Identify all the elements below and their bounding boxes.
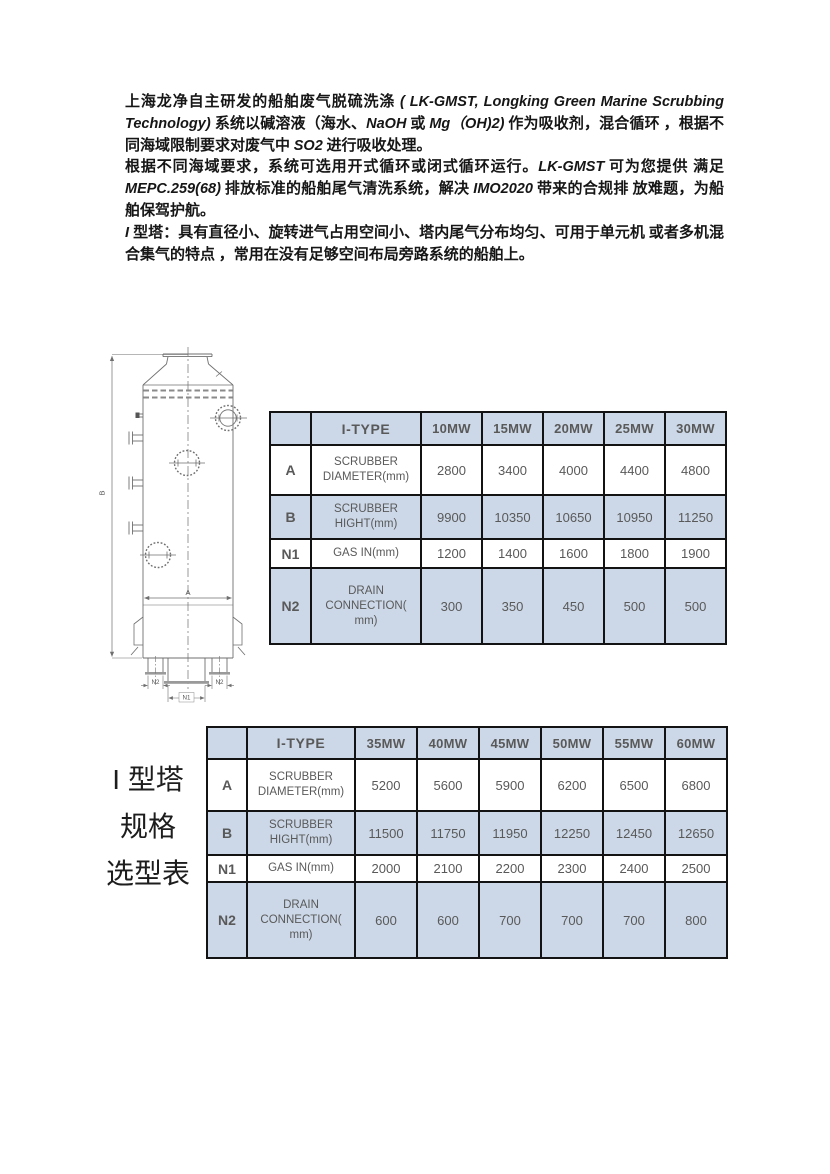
value-cell: 2800 (421, 445, 482, 495)
value-cell: 10950 (604, 495, 665, 539)
tower-diagram-svg: A B N2 N2 N1 (95, 333, 255, 713)
spec-table-35-60mw: I-TYPE35MW40MW45MW50MW55MW60MWASCRUBBER … (206, 726, 728, 959)
value-cell: 2400 (603, 855, 665, 882)
value-cell: 500 (604, 568, 665, 644)
text-run: Mg（OH)2) (429, 116, 504, 132)
value-cell: 2300 (541, 855, 603, 882)
value-cell: 4800 (665, 445, 726, 495)
column-header-cell: 55MW (603, 727, 665, 759)
row-label-cell: SCRUBBER HIGHT(mm) (311, 495, 421, 539)
value-cell: 6800 (665, 759, 727, 811)
value-cell: 450 (543, 568, 604, 644)
text-run: MEPC.259(68) (125, 181, 221, 197)
value-cell: 1900 (665, 539, 726, 568)
row-label-cell: SCRUBBER DIAMETER(mm) (311, 445, 421, 495)
text-run: IMO2020 (473, 181, 533, 197)
nozzle-label-n1: N1 (183, 695, 191, 702)
column-header-cell: 60MW (665, 727, 727, 759)
table-row-N1: N1GAS IN(mm)200021002200230024002500 (207, 855, 727, 882)
table-row-N1: N1GAS IN(mm)12001400160018001900 (270, 539, 726, 568)
column-header-cell: 45MW (479, 727, 541, 759)
side-caption-line: I 型塔 (92, 756, 204, 803)
value-cell: 10650 (543, 495, 604, 539)
row-label-cell: DRAIN CONNECTION( mm) (311, 568, 421, 644)
value-cell: 700 (603, 882, 665, 958)
value-cell: 700 (479, 882, 541, 958)
manhole-middle (169, 451, 205, 476)
column-header-cell: 15MW (482, 412, 543, 445)
value-cell: 11750 (417, 811, 479, 855)
table-row-B: BSCRUBBER HIGHT(mm)990010350106501095011… (270, 495, 726, 539)
text-run: 上海龙净自主研发的船舶废气脱硫洗涤 (125, 94, 400, 110)
text-run: I (125, 225, 133, 241)
row-label-cell: SCRUBBER DIAMETER(mm) (247, 759, 355, 811)
text-run: LK-GMST (538, 159, 604, 175)
side-caption: I 型塔规格选型表 (92, 756, 204, 897)
value-cell: 1200 (421, 539, 482, 568)
manhole-lower-left (140, 543, 176, 568)
value-cell: 3400 (482, 445, 543, 495)
text-run: 排放标准的船舶尾气清洗系统，解决 (221, 181, 473, 197)
text-run: 可为您提供 满足 (604, 159, 724, 175)
column-header-cell: 25MW (604, 412, 665, 445)
column-header-cell: 20MW (543, 412, 604, 445)
value-cell: 5200 (355, 759, 417, 811)
nozzle-label-n2-right: N2 (216, 679, 224, 686)
row-key-cell: B (270, 495, 311, 539)
column-header-cell: 10MW (421, 412, 482, 445)
paragraph: 上海龙净自主研发的船舶废气脱硫洗涤 ( LK-GMST, Longking Gr… (125, 92, 724, 157)
row-label-cell: DRAIN CONNECTION( mm) (247, 882, 355, 958)
row-label-cell: GAS IN(mm) (311, 539, 421, 568)
value-cell: 9900 (421, 495, 482, 539)
row-label-cell: GAS IN(mm) (247, 855, 355, 882)
value-cell: 2200 (479, 855, 541, 882)
value-cell: 12650 (665, 811, 727, 855)
value-cell: 2100 (417, 855, 479, 882)
row-key-cell: N1 (207, 855, 247, 882)
dim-label-a: A (185, 588, 190, 597)
scrubber-tower-drawing: A B N2 N2 N1 (95, 333, 255, 713)
value-cell: 350 (482, 568, 543, 644)
value-cell: 6200 (541, 759, 603, 811)
table-row-B: BSCRUBBER HIGHT(mm)115001175011950122501… (207, 811, 727, 855)
value-cell: 11250 (665, 495, 726, 539)
value-cell: 800 (665, 882, 727, 958)
type-header-cell: I-TYPE (311, 412, 421, 445)
corner-cell (207, 727, 247, 759)
value-cell: 2500 (665, 855, 727, 882)
table-row-N2: N2DRAIN CONNECTION( mm)60060070070070080… (207, 882, 727, 958)
table-header-row: I-TYPE10MW15MW20MW25MW30MW (270, 412, 726, 445)
value-cell: 600 (355, 882, 417, 958)
spec-table-10-30mw: I-TYPE10MW15MW20MW25MW30MWASCRUBBER DIAM… (269, 411, 727, 645)
value-cell: 2000 (355, 855, 417, 882)
column-header-cell: 40MW (417, 727, 479, 759)
value-cell: 11500 (355, 811, 417, 855)
document-page: { "document": { "paragraphs": [ { "runs"… (0, 0, 830, 1174)
manhole-upper-right (210, 406, 247, 431)
side-nozzles (129, 413, 143, 535)
text-run: 系统以碱溶液（海水、 (215, 116, 366, 132)
value-cell: 12450 (603, 811, 665, 855)
row-key-cell: B (207, 811, 247, 855)
value-cell: 6500 (603, 759, 665, 811)
corner-cell (270, 412, 311, 445)
text-run: 具有直径小、旋转进气占用空间小、塔内尾气分布均匀、可用于单元机 或者多机混合集气… (125, 225, 724, 263)
side-caption-line: 选型表 (92, 850, 204, 897)
value-cell: 1600 (543, 539, 604, 568)
row-key-cell: N2 (207, 882, 247, 958)
value-cell: 4000 (543, 445, 604, 495)
value-cell: 300 (421, 568, 482, 644)
row-key-cell: N2 (270, 568, 311, 644)
table-row-N2: N2DRAIN CONNECTION( mm)300350450500500 (270, 568, 726, 644)
side-caption-line: 规格 (92, 803, 204, 850)
row-key-cell: N1 (270, 539, 311, 568)
value-cell: 11950 (479, 811, 541, 855)
value-cell: 700 (541, 882, 603, 958)
nozzle-label-n2-left: N2 (152, 679, 160, 686)
column-header-cell: 50MW (541, 727, 603, 759)
type-header-cell: I-TYPE (247, 727, 355, 759)
body-text: 上海龙净自主研发的船舶废气脱硫洗涤 ( LK-GMST, Longking Gr… (125, 92, 724, 266)
column-header-cell: 30MW (665, 412, 726, 445)
text-run: SO2 (294, 138, 323, 154)
column-header-cell: 35MW (355, 727, 417, 759)
value-cell: 600 (417, 882, 479, 958)
value-cell: 5900 (479, 759, 541, 811)
table-row-A: ASCRUBBER DIAMETER(mm)520056005900620065… (207, 759, 727, 811)
row-key-cell: A (207, 759, 247, 811)
paragraph: 根据不同海域要求，系统可选用开式循环或闭式循环运行。LK-GMST 可为您提供 … (125, 157, 724, 222)
dim-label-b: B (98, 490, 107, 495)
row-label-cell: SCRUBBER HIGHT(mm) (247, 811, 355, 855)
text-run: 进行吸收处理。 (323, 138, 432, 154)
value-cell: 4400 (604, 445, 665, 495)
value-cell: 1800 (604, 539, 665, 568)
table-row-A: ASCRUBBER DIAMETER(mm)280034004000440048… (270, 445, 726, 495)
paragraph: I 型塔：具有直径小、旋转进气占用空间小、塔内尾气分布均匀、可用于单元机 或者多… (125, 223, 724, 267)
text-run: NaOH (366, 116, 406, 132)
row-key-cell: A (270, 445, 311, 495)
value-cell: 500 (665, 568, 726, 644)
text-run: 或 (406, 116, 429, 132)
text-run: 根据不同海域要求，系统可选用开式循环或闭式循环运行。 (125, 159, 538, 175)
value-cell: 5600 (417, 759, 479, 811)
text-run: 型塔： (133, 225, 178, 241)
value-cell: 1400 (482, 539, 543, 568)
dimension-B (112, 355, 188, 659)
value-cell: 10350 (482, 495, 543, 539)
table-header-row: I-TYPE35MW40MW45MW50MW55MW60MW (207, 727, 727, 759)
value-cell: 12250 (541, 811, 603, 855)
